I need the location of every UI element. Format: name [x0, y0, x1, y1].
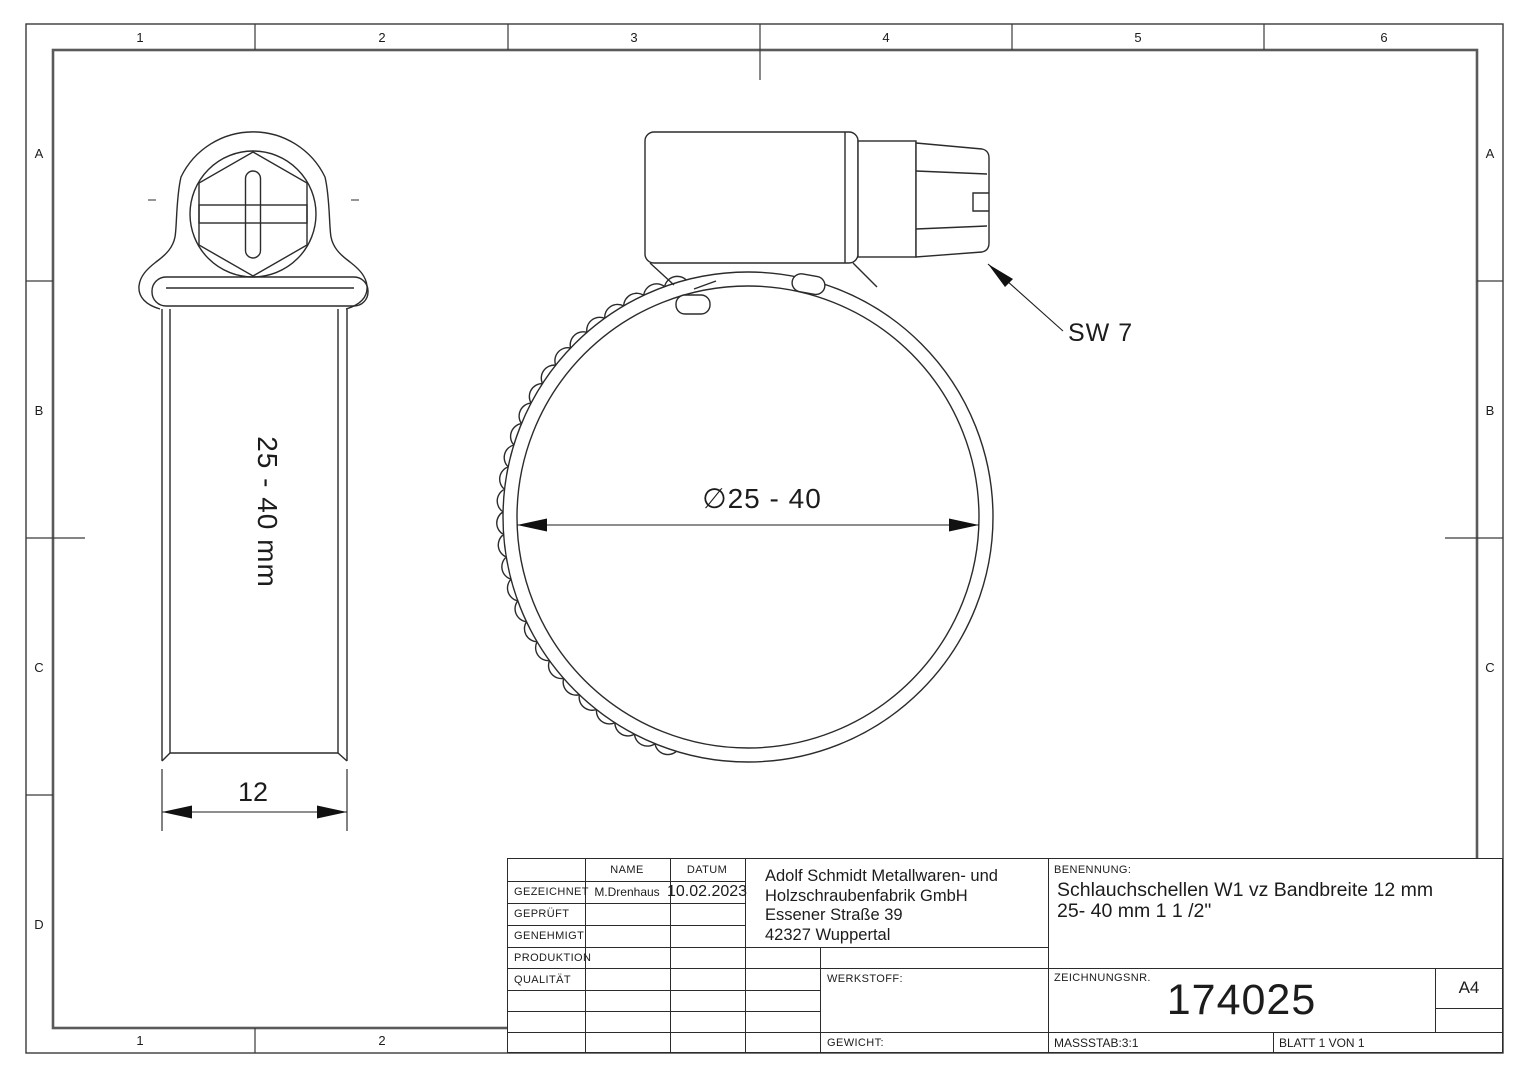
row-label-b: B — [35, 403, 44, 418]
band-slot-tab-left — [676, 295, 710, 314]
col-header-date: DATUM — [687, 864, 727, 876]
worm-housing — [645, 132, 989, 314]
drawing-title: Schlauchschellen W1 vz Bandbreite 12 mm … — [1057, 880, 1433, 922]
band-width-value: 12 — [238, 777, 268, 807]
col-label-5: 5 — [1134, 30, 1141, 45]
row-label-c: C — [34, 660, 43, 675]
housing-bell-outline — [139, 132, 367, 309]
col-label-bottom-1: 1 — [136, 1033, 143, 1048]
arrowhead-right — [317, 806, 347, 819]
housing-strip — [152, 277, 368, 306]
row-label-a: A — [35, 146, 44, 161]
row-label-a-right: A — [1486, 146, 1495, 161]
drawn-by-name: M.Drenhaus — [594, 885, 659, 899]
werkstoff-label: WERKSTOFF: — [827, 973, 903, 985]
col-label-6: 6 — [1380, 30, 1387, 45]
col-label-4: 4 — [882, 30, 889, 45]
arrowhead-right — [949, 519, 979, 532]
screw-neck — [858, 141, 916, 257]
col-label-3: 3 — [630, 30, 637, 45]
gewicht-label: GEWICHT: — [827, 1037, 884, 1049]
paper-format: A4 — [1435, 968, 1503, 1008]
diameter-value: ∅25 - 40 — [702, 483, 822, 514]
band-serrations — [497, 276, 686, 754]
arrowhead-left — [517, 519, 547, 532]
drawing-title-line1: Schlauchschellen W1 vz Bandbreite 12 mm — [1057, 880, 1433, 901]
drawn-date: 10.02.2023 — [667, 883, 747, 901]
company-address: Adolf Schmidt Metallwaren- und Holzschra… — [765, 867, 998, 945]
arrowhead-left — [162, 806, 192, 819]
phillips-cross-vertical — [246, 171, 261, 258]
col-label-bottom-2: 2 — [378, 1033, 385, 1048]
band-inner-circle — [517, 286, 979, 748]
band-outer-circle — [503, 272, 993, 762]
row-label-genehmigt: GENEHMIGT — [514, 930, 584, 942]
row-label-c-right: C — [1485, 660, 1494, 675]
band-slot-tab-right — [791, 272, 827, 295]
band-range-label: 25 - 40 mm — [252, 436, 283, 588]
hex-size-callout: SW 7 — [988, 264, 1133, 347]
row-label-geprueft: GEPRÜFT — [514, 908, 569, 920]
row-label-b-right: B — [1486, 403, 1495, 418]
col-header-name: NAME — [610, 864, 643, 876]
benennung-label: BENENNUNG: — [1054, 864, 1131, 876]
front-view: ∅25 - 40 SW 7 — [497, 132, 1133, 762]
phillips-cross-horizontal — [199, 205, 307, 223]
row-label-d: D — [34, 917, 43, 932]
hex-size-label: SW 7 — [1068, 319, 1133, 347]
row-label-gezeichnet: GEZEICHNET — [514, 886, 589, 898]
drawing-number: 174025 — [1048, 968, 1435, 1032]
col-label-1: 1 — [136, 30, 143, 45]
row-label-qualitaet: QUALITÄT — [514, 974, 571, 986]
massstab: MASSSTAB:3:1 — [1054, 1036, 1138, 1050]
dimension-band-width: 12 — [162, 769, 347, 831]
col-label-2: 2 — [378, 30, 385, 45]
dimension-diameter: ∅25 - 40 — [517, 483, 979, 532]
screw-hex-head — [916, 143, 989, 257]
title-block: NAME DATUM GEZEICHNET GEPRÜFT GENEHMIGT … — [507, 858, 1503, 1053]
row-label-produktion: PRODUKTION — [514, 952, 591, 964]
housing-body — [645, 132, 858, 263]
band-end-tip — [694, 281, 716, 289]
drawing-sheet: 1 2 3 4 5 6 1 2 A B C D A B C — [0, 0, 1528, 1080]
drawing-title-line2: 25- 40 mm 1 1 /2" — [1057, 901, 1433, 922]
blatt: BLATT 1 VON 1 — [1279, 1036, 1365, 1050]
